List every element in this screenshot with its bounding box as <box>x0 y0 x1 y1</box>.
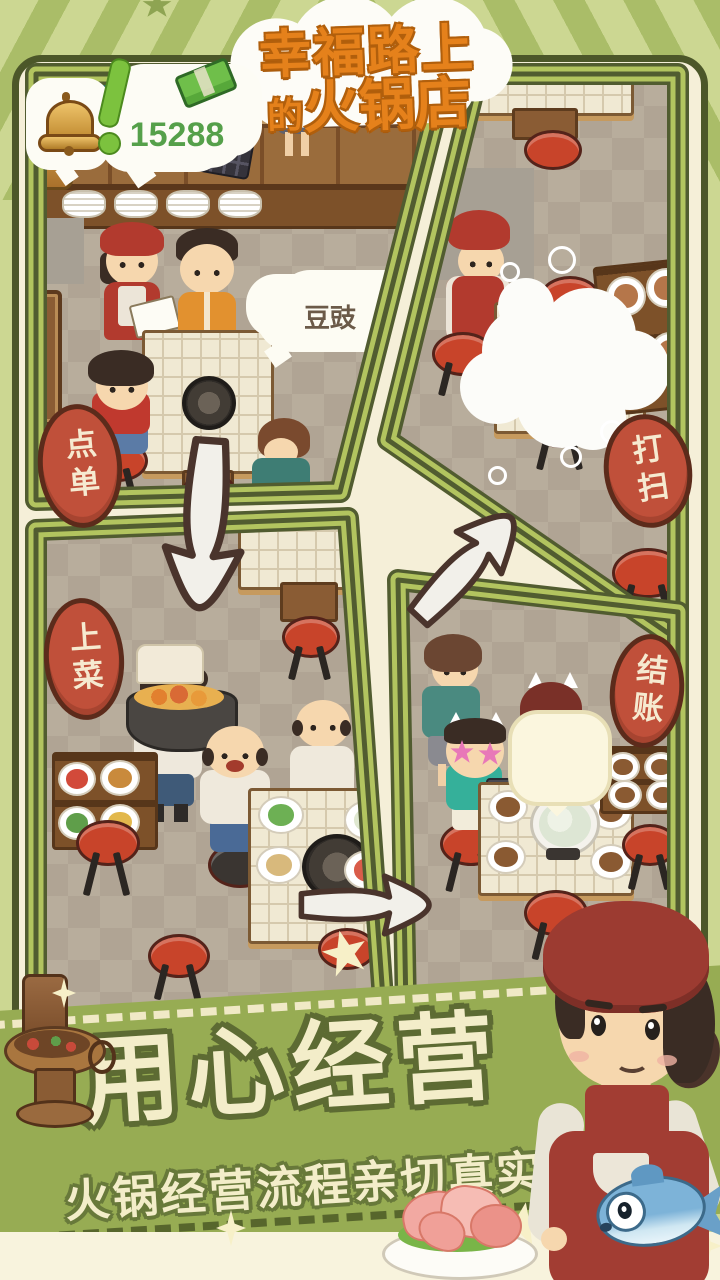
plate <box>100 760 140 796</box>
fish-icon <box>589 1149 720 1280</box>
earnings-bubble: 15288 <box>108 64 246 168</box>
side-hair <box>292 720 303 736</box>
plate <box>646 780 680 810</box>
flow-arrow-down <box>141 428 267 645</box>
title-line2: 的火锅店 <box>236 57 501 147</box>
plate <box>608 780 642 810</box>
chef-shoe <box>174 804 188 822</box>
promo-screenshot: 豆豉 <box>0 0 720 1280</box>
customer-bob-hair <box>88 350 154 386</box>
step-label-text: 上菜 <box>66 620 102 698</box>
stool <box>622 824 678 866</box>
stool <box>524 130 582 170</box>
step-label-text: 结账 <box>628 652 667 731</box>
table-stove <box>182 376 236 430</box>
speech-text: 豆豉 <box>304 298 356 335</box>
chef-bandana <box>543 901 709 1013</box>
cash-bundle-icon <box>174 57 239 110</box>
plate <box>258 796 304 834</box>
chef-eye <box>645 1019 660 1040</box>
chef-hat <box>136 644 204 684</box>
chef-hand <box>541 1227 567 1251</box>
pot-food <box>134 684 224 710</box>
title-line2-rest: 火锅店 <box>302 71 472 140</box>
kid-hair <box>444 718 506 744</box>
title-line2-small: 的 <box>266 95 303 137</box>
earnings-value: 15288 <box>108 116 246 155</box>
stool <box>282 616 340 658</box>
chef-eye <box>591 1015 606 1036</box>
woman-leg <box>438 764 446 786</box>
plate <box>58 762 96 796</box>
stool <box>612 548 684 598</box>
flow-arrow-right <box>295 860 455 950</box>
waiter-red-hat <box>448 210 510 250</box>
customer-face <box>180 244 234 294</box>
bell-bubble <box>26 78 110 170</box>
side-hair <box>256 748 268 766</box>
plate-stack <box>166 190 210 218</box>
chef-blush <box>657 1055 677 1066</box>
plate-stack <box>114 190 158 218</box>
plate <box>486 840 526 874</box>
chef-smile <box>615 1051 649 1073</box>
plate-stack <box>62 190 106 218</box>
open-mouth <box>226 760 244 772</box>
chef-blush <box>569 1051 589 1062</box>
plate <box>644 752 678 782</box>
side-hair <box>202 748 214 766</box>
payment-bubble <box>508 710 612 806</box>
plate-stack <box>218 190 262 218</box>
stool <box>76 820 140 866</box>
step-label-text: 打扫 <box>627 431 668 511</box>
stool <box>148 934 210 978</box>
waitress-bandana <box>100 222 164 256</box>
hotpot-base <box>546 848 580 860</box>
floor-mat <box>30 218 84 284</box>
side-hair <box>340 720 351 736</box>
chef-mascot <box>515 895 720 1280</box>
step-label-text: 点单 <box>61 427 99 505</box>
